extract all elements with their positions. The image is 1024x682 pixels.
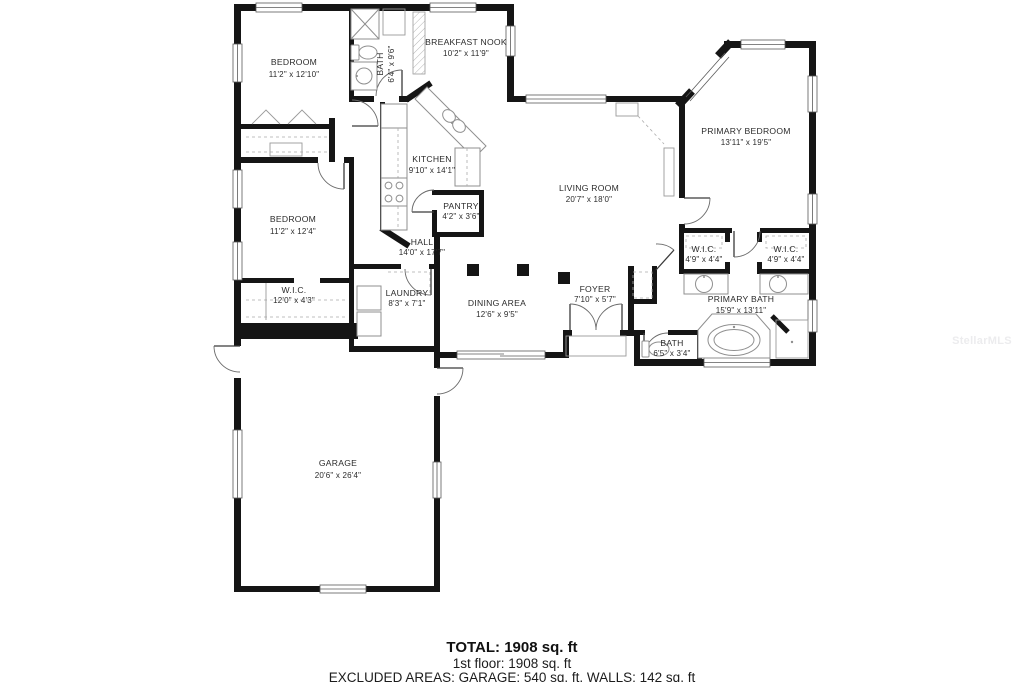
refrigerator: [381, 104, 407, 128]
door-garage-side: [214, 346, 240, 372]
svg-text:PRIMARY BATH: PRIMARY BATH: [708, 294, 775, 304]
svg-text:6'4" x 9'6": 6'4" x 9'6": [387, 45, 396, 82]
door-bedroom-1: [352, 100, 378, 126]
room-label-pantry: PANTRY 4'2" x 3'6": [442, 201, 479, 221]
entry-double-doors: [570, 304, 622, 330]
linen-cabinet: [383, 9, 405, 35]
svg-text:20'7" x 18'0": 20'7" x 18'0": [566, 195, 612, 204]
entry-porch: [566, 336, 626, 356]
svg-text:15'9" x 13'11": 15'9" x 13'11": [716, 306, 767, 315]
svg-text:BEDROOM: BEDROOM: [270, 214, 316, 224]
svg-text:20'6" x 26'4": 20'6" x 26'4": [315, 471, 361, 480]
svg-text:KITCHEN: KITCHEN: [412, 154, 451, 164]
window: [233, 242, 242, 280]
svg-text:BATH: BATH: [660, 338, 683, 348]
svg-text:12'6" x 9'5": 12'6" x 9'5": [476, 310, 518, 319]
floor-plan-drawing: BEDROOM 11'2" x 12'10" BATH 6'4" x 9'6" …: [0, 0, 1024, 682]
double-vanity: [684, 274, 808, 294]
footer-excluded: EXCLUDED AREAS: GARAGE: 540 sq. ft, WALL…: [329, 670, 696, 682]
svg-text:8'3" x 7'1": 8'3" x 7'1": [388, 299, 425, 308]
media-niche: [616, 103, 674, 196]
window: [741, 40, 785, 49]
room-label-wic-left: W.I.C. 12'0" x 4'3": [273, 285, 315, 305]
svg-text:LIVING ROOM: LIVING ROOM: [559, 183, 619, 193]
door-pantry: [412, 190, 434, 212]
closet-bifold-doors: [246, 110, 330, 156]
room-label-breakfast-nook: BREAKFAST NOOK 10'2" x 11'9": [425, 37, 507, 58]
room-label-primary-bath: PRIMARY BATH 15'9" x 13'11": [708, 294, 775, 315]
window: [808, 194, 817, 224]
room-label-bath-1: BATH 6'4" x 9'6": [375, 45, 396, 82]
svg-text:4'9" x 4'4": 4'9" x 4'4": [767, 255, 804, 264]
room-label-foyer: FOYER 7'10" x 5'7": [574, 284, 616, 304]
shower: [772, 316, 808, 358]
svg-text:11'2" x 12'10": 11'2" x 12'10": [269, 70, 320, 79]
room-label-dining-area: DINING AREA 12'6" x 9'5": [468, 298, 526, 319]
svg-text:BREAKFAST NOOK: BREAKFAST NOOK: [425, 37, 507, 47]
door-primary-bedroom: [684, 198, 710, 224]
svg-text:W.I.C.: W.I.C.: [774, 244, 799, 254]
svg-text:HALL: HALL: [411, 237, 434, 247]
room-label-bedroom-1: BEDROOM 11'2" x 12'10": [269, 57, 320, 79]
kitchen-peninsula: [415, 87, 486, 158]
window: [233, 44, 242, 82]
svg-text:13'11" x 19'5": 13'11" x 19'5": [721, 138, 772, 147]
svg-text:BATH: BATH: [375, 52, 385, 75]
linen-closet: [633, 272, 652, 298]
svg-text:14'0" x 17'7": 14'0" x 17'7": [399, 248, 445, 257]
footer: TOTAL: 1908 sq. ft 1st floor: 1908 sq. f…: [329, 639, 696, 682]
room-label-bedroom-2: BEDROOM 11'2" x 12'4": [270, 214, 316, 236]
svg-text:PANTRY: PANTRY: [443, 201, 479, 211]
svg-text:12'0" x 4'3": 12'0" x 4'3": [273, 296, 315, 305]
window: [808, 300, 817, 332]
window: [430, 3, 476, 12]
svg-text:W.I.C.: W.I.C.: [282, 285, 307, 295]
watermark: StellarMLS: [952, 335, 1012, 347]
bathtub: [698, 314, 770, 358]
nook-builtin: [413, 12, 425, 74]
bathroom-sink: [351, 62, 377, 90]
room-label-wic-2: W.I.C. 4'9" x 4'4": [767, 244, 804, 264]
post: [558, 272, 570, 284]
room-label-living-room: LIVING ROOM 20'7" x 18'0": [559, 183, 619, 204]
svg-text:9'10" x 14'1": 9'10" x 14'1": [409, 166, 455, 175]
room-label-primary-bedroom: PRIMARY BEDROOM 13'11" x 19'5": [701, 126, 790, 147]
window: [256, 3, 302, 12]
kitchen-counter-2: [455, 148, 480, 186]
svg-text:W.I.C.: W.I.C.: [692, 244, 717, 254]
room-label-laundry: LAUNDRY 8'3" x 7'1": [386, 288, 429, 308]
svg-text:4'2" x 3'6": 4'2" x 3'6": [442, 212, 479, 221]
door-bedroom-2: [318, 163, 344, 189]
toilet: [351, 45, 377, 60]
svg-text:4'9" x 4'4": 4'9" x 4'4": [685, 255, 722, 264]
svg-text:FOYER: FOYER: [580, 284, 611, 294]
door-primary-bath-corridor: [734, 231, 760, 257]
floor-plan-page: BEDROOM 11'2" x 12'10" BATH 6'4" x 9'6" …: [0, 0, 1024, 682]
window: [233, 170, 242, 208]
post: [517, 264, 529, 276]
room-label-kitchen: KITCHEN 9'10" x 14'1": [409, 154, 455, 175]
svg-text:DINING AREA: DINING AREA: [468, 298, 526, 308]
window: [433, 462, 441, 498]
svg-text:11'2" x 12'4": 11'2" x 12'4": [270, 227, 316, 236]
room-label-garage: GARAGE 20'6" x 26'4": [315, 458, 361, 480]
svg-text:6'5" x 3'4": 6'5" x 3'4": [653, 349, 690, 358]
svg-text:PRIMARY BEDROOM: PRIMARY BEDROOM: [701, 126, 790, 136]
post: [467, 264, 479, 276]
svg-text:10'2" x 11'9": 10'2" x 11'9": [443, 49, 489, 58]
footer-floor1: 1st floor: 1908 sq. ft: [453, 656, 572, 671]
footer-total: TOTAL: 1908 sq. ft: [446, 639, 577, 656]
window: [704, 358, 770, 367]
window: [808, 76, 817, 112]
shower: [351, 9, 379, 39]
svg-text:GARAGE: GARAGE: [319, 458, 357, 468]
svg-text:7'10" x 5'7": 7'10" x 5'7": [574, 295, 616, 304]
sliding-door: [457, 351, 545, 359]
room-label-wic-1: W.I.C. 4'9" x 4'4": [685, 244, 722, 264]
window: [526, 95, 606, 103]
door-hall-corridor: [656, 244, 674, 270]
svg-text:BEDROOM: BEDROOM: [271, 57, 317, 67]
window: [506, 26, 515, 56]
window: [233, 430, 242, 498]
svg-text:LAUNDRY: LAUNDRY: [386, 288, 429, 298]
stove: [381, 178, 407, 206]
window: [320, 585, 366, 593]
door-garage-service: [437, 368, 463, 394]
